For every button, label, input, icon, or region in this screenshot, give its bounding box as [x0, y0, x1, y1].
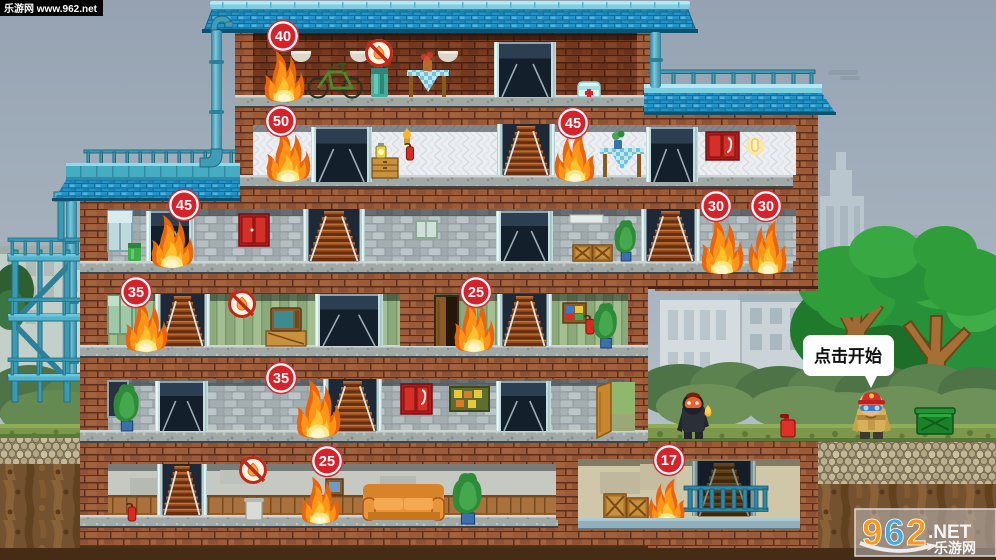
- svg-text:40: 40: [275, 29, 291, 45]
- svg-text:25: 25: [319, 454, 335, 470]
- svg-text:乐游网 www.962.net: 乐游网 www.962.net: [4, 2, 98, 15]
- svg-text:35: 35: [273, 371, 289, 387]
- svg-text:17: 17: [661, 453, 677, 469]
- svg-text:45: 45: [565, 116, 581, 132]
- svg-text:45: 45: [176, 198, 192, 214]
- svg-text:6: 6: [884, 512, 904, 553]
- svg-text:35: 35: [128, 285, 144, 301]
- svg-text:25: 25: [468, 285, 484, 301]
- svg-text:30: 30: [758, 199, 774, 215]
- svg-text:乐游网: 乐游网: [934, 540, 976, 556]
- svg-text:50: 50: [273, 114, 289, 130]
- svg-text:30: 30: [708, 199, 724, 215]
- svg-text:点击开始: 点击开始: [814, 346, 882, 366]
